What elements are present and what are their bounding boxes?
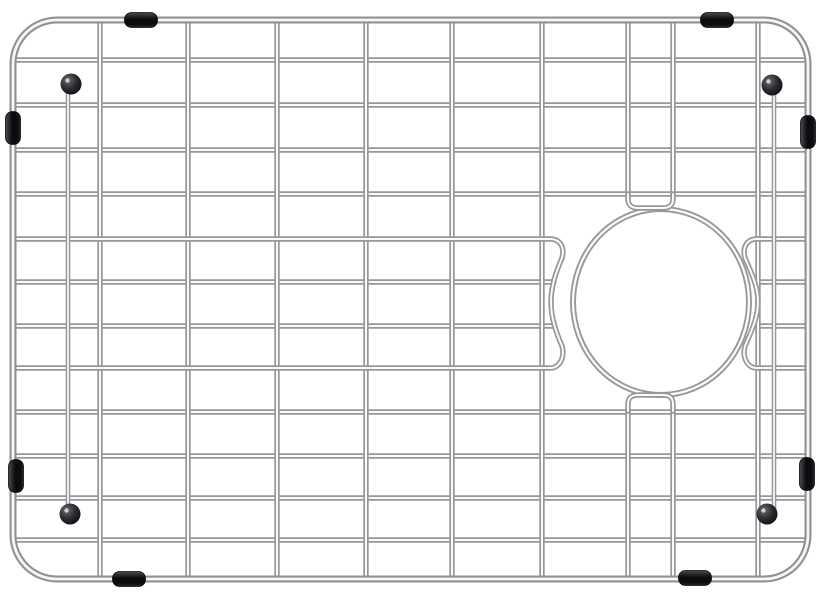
rubber-foot	[757, 504, 778, 525]
sink-grid-product-photo	[0, 0, 825, 600]
rubber-foot	[61, 74, 82, 95]
rubber-bumper-top	[125, 13, 158, 28]
rubber-bumper-right	[801, 116, 816, 149]
rubber-bumper-left	[9, 460, 24, 493]
grid-wires	[13, 20, 808, 579]
rubber-foot	[762, 75, 783, 96]
drain-ring	[573, 194, 749, 411]
drain-wrap-wires	[13, 239, 808, 368]
rubber-bumper-right	[800, 458, 815, 491]
rubber-foot	[60, 504, 81, 525]
rubber-bumper-left	[6, 112, 21, 145]
sink-grid-svg	[0, 0, 825, 600]
rubber-bumper-bottom	[113, 572, 146, 587]
rubber-bumper-bottom	[679, 571, 712, 586]
rubber-bumper-top	[701, 13, 734, 28]
